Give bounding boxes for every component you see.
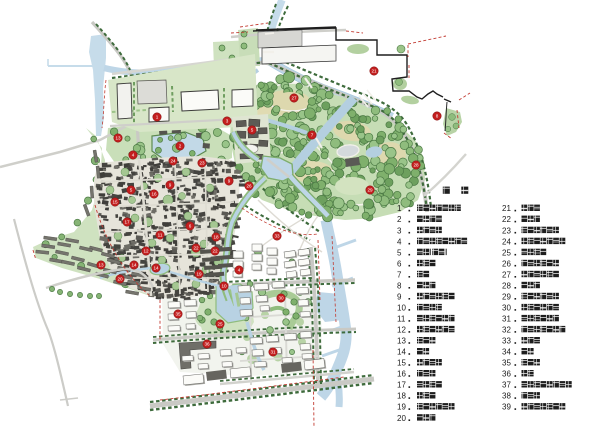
svg-text:8: 8 xyxy=(397,281,402,290)
svg-text:36: 36 xyxy=(502,370,511,379)
svg-text:11: 11 xyxy=(397,315,406,324)
svg-text:5: 5 xyxy=(397,248,402,257)
svg-text:14: 14 xyxy=(153,266,159,271)
svg-text:26: 26 xyxy=(502,259,511,268)
svg-text:7: 7 xyxy=(311,133,314,138)
svg-text:6: 6 xyxy=(397,259,402,268)
svg-text:22: 22 xyxy=(212,249,218,254)
svg-text:21: 21 xyxy=(371,69,377,74)
svg-text:13: 13 xyxy=(98,263,104,268)
svg-text:34: 34 xyxy=(502,348,511,357)
svg-text:9: 9 xyxy=(228,179,231,184)
svg-text:17: 17 xyxy=(397,381,406,390)
svg-text:5: 5 xyxy=(251,128,254,133)
svg-text:20: 20 xyxy=(117,277,123,282)
svg-text:31: 31 xyxy=(270,350,276,355)
svg-text:23: 23 xyxy=(199,161,205,166)
svg-text:20: 20 xyxy=(397,414,406,423)
svg-text:22: 22 xyxy=(502,215,511,224)
svg-text:24: 24 xyxy=(170,159,176,164)
svg-text:16: 16 xyxy=(151,192,157,197)
svg-text:10: 10 xyxy=(221,284,227,289)
svg-text:16: 16 xyxy=(397,370,406,379)
svg-text:27: 27 xyxy=(502,270,511,279)
svg-text:12: 12 xyxy=(397,326,406,335)
svg-text:33: 33 xyxy=(502,337,511,346)
svg-text:32: 32 xyxy=(502,326,511,335)
svg-text:15: 15 xyxy=(112,200,118,205)
svg-text:26: 26 xyxy=(246,184,252,189)
svg-text:33: 33 xyxy=(274,234,280,239)
svg-text:38: 38 xyxy=(502,392,511,401)
svg-text:7: 7 xyxy=(397,270,402,279)
svg-text:39: 39 xyxy=(502,403,511,412)
svg-text:15: 15 xyxy=(397,359,406,368)
svg-text:9: 9 xyxy=(397,292,402,301)
svg-text:18: 18 xyxy=(397,392,406,401)
svg-text:31: 31 xyxy=(502,315,511,324)
svg-text:13: 13 xyxy=(115,136,121,141)
svg-text:27: 27 xyxy=(291,96,297,101)
svg-text:11: 11 xyxy=(158,233,163,238)
svg-text:29: 29 xyxy=(502,292,511,301)
svg-text:37: 37 xyxy=(502,381,511,390)
svg-text:30: 30 xyxy=(502,304,511,313)
svg-text:4: 4 xyxy=(238,268,241,273)
svg-text:23: 23 xyxy=(502,226,511,235)
svg-text:30: 30 xyxy=(278,296,284,301)
svg-text:1: 1 xyxy=(397,204,402,213)
svg-text:2: 2 xyxy=(397,215,402,224)
svg-text:13: 13 xyxy=(397,337,406,346)
svg-text:22: 22 xyxy=(193,246,199,251)
svg-text:9: 9 xyxy=(169,183,172,188)
svg-text:8: 8 xyxy=(436,114,439,119)
svg-text:17: 17 xyxy=(124,220,130,225)
svg-text:35: 35 xyxy=(175,312,181,317)
svg-text:14: 14 xyxy=(397,348,406,357)
svg-text:14: 14 xyxy=(131,263,137,268)
svg-text:3: 3 xyxy=(397,226,402,235)
svg-text:21: 21 xyxy=(502,204,511,213)
svg-text:1: 1 xyxy=(156,115,159,120)
svg-text:4: 4 xyxy=(132,153,135,158)
svg-text:28: 28 xyxy=(413,163,419,168)
svg-text:29: 29 xyxy=(367,188,373,193)
svg-text:18: 18 xyxy=(213,235,219,240)
svg-text:5: 5 xyxy=(130,188,133,193)
svg-text:6: 6 xyxy=(189,224,192,229)
svg-text:28: 28 xyxy=(502,281,511,290)
svg-text:3: 3 xyxy=(226,119,229,124)
svg-text:35: 35 xyxy=(502,359,511,368)
svg-text:12: 12 xyxy=(143,249,149,254)
svg-text:2: 2 xyxy=(179,144,182,149)
svg-text:25: 25 xyxy=(502,248,511,257)
svg-text:24: 24 xyxy=(502,237,511,246)
svg-text:19: 19 xyxy=(196,272,202,277)
svg-text:10: 10 xyxy=(397,304,406,313)
svg-text:19: 19 xyxy=(397,403,406,412)
svg-text:36: 36 xyxy=(204,342,210,347)
svg-text:4: 4 xyxy=(397,237,402,246)
svg-text:25: 25 xyxy=(217,322,223,327)
